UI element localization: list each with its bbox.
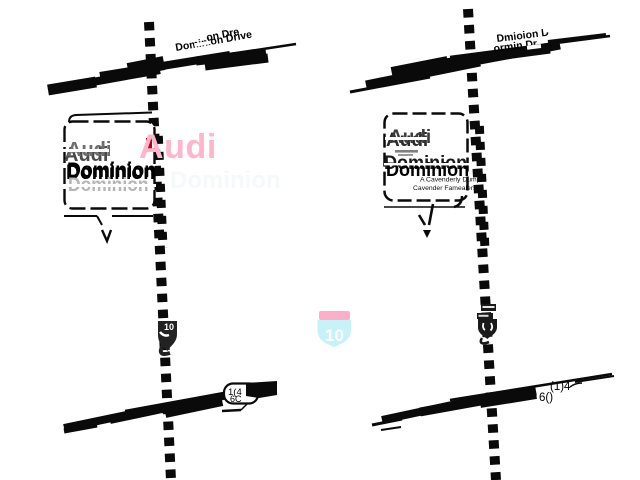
svg-text:6(): 6()	[539, 392, 553, 404]
svg-text:10: 10	[325, 326, 344, 345]
svg-text:Cavender Famealers: Cavender Famealers	[413, 185, 477, 192]
svg-text:A Cavenderly Dump: A Cavenderly Dump	[420, 177, 481, 184]
svg-text:10: 10	[164, 322, 174, 332]
svg-text:Dominion: Dominion	[170, 167, 281, 194]
svg-text:6C: 6C	[230, 394, 242, 404]
